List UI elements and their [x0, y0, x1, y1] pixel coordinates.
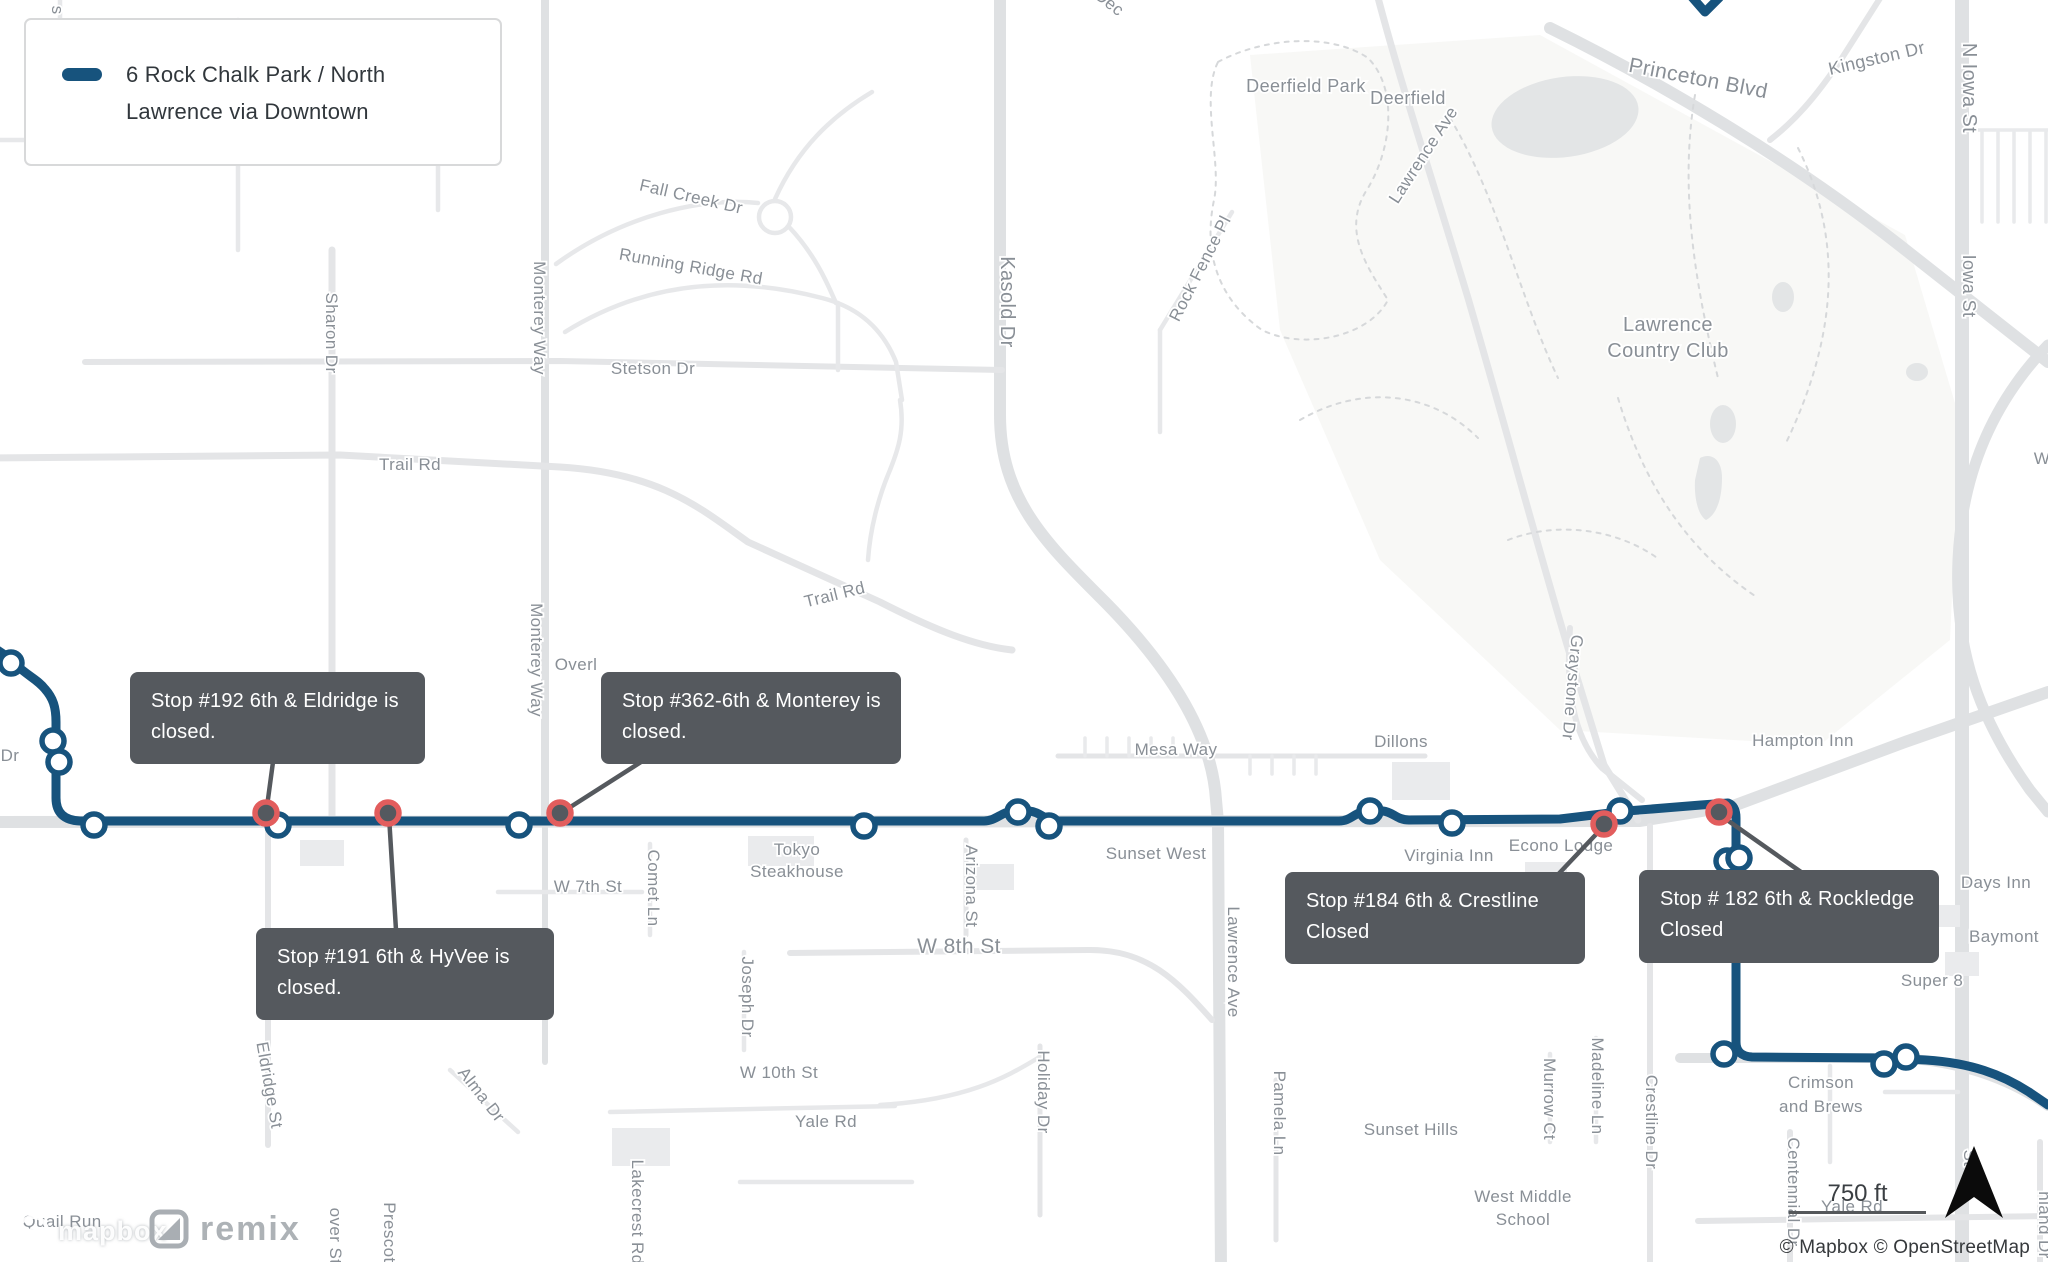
street-label: Baymont	[1969, 927, 2039, 946]
street-label: Madeline Ln	[1588, 1037, 1607, 1134]
route-legend-label: 6 Rock Chalk Park / North Lawrence via D…	[126, 56, 385, 130]
bus-stop-marker[interactable]	[1728, 847, 1750, 869]
street-label: Monterey Way	[527, 603, 546, 717]
street-label: Hampton Inn	[1752, 731, 1854, 750]
map-page: s FDecSharon DrMonterey WayMonterey WayF…	[0, 0, 2048, 1262]
tooltip-stop-362: Stop #362-6th & Monterey is closed.	[601, 672, 901, 764]
street-label: Murrow Ct	[1540, 1058, 1559, 1140]
bus-stop-marker[interactable]	[1713, 1043, 1735, 1065]
scale-text: 750 ft	[1789, 1180, 1926, 1208]
tooltip-leader-line	[561, 762, 641, 813]
tooltip-stop-184-line1: Stop #184 6th & Crestline	[1306, 886, 1564, 917]
street-label: Dr	[1, 746, 20, 765]
tooltip-stop-192-line1: Stop #192 6th & Eldridge is	[151, 686, 404, 717]
street-label: Prescott	[380, 1202, 399, 1262]
street-label: Overl	[555, 655, 598, 674]
street-label: Dillons	[1374, 732, 1428, 751]
bus-stop-marker[interactable]	[853, 815, 875, 837]
tooltip-stop-184-line2: Closed	[1306, 917, 1564, 948]
bus-stop-marker[interactable]	[48, 751, 70, 773]
street-label: Lawrence Ave	[1224, 906, 1243, 1017]
north-arrow-icon	[1945, 1146, 2003, 1218]
closed-stop-marker[interactable]	[377, 802, 399, 824]
bus-stop-marker[interactable]	[1895, 1046, 1917, 1068]
street-label: Arizona St	[962, 845, 981, 927]
mapbox-logo-icon	[16, 1214, 50, 1248]
street-label: Alma Dr	[454, 1063, 508, 1125]
route-legend-line2: Lawrence via Downtown	[126, 99, 369, 124]
street-label: Eldridge St	[252, 1040, 286, 1130]
street-label: School	[1496, 1210, 1550, 1229]
route-legend: 6 Rock Chalk Park / North Lawrence via D…	[24, 18, 502, 166]
closed-stop-marker[interactable]	[1593, 813, 1615, 835]
bus-stop-marker[interactable]	[1359, 800, 1381, 822]
street-label: and Brews	[1779, 1097, 1863, 1116]
street-label: Sunset Hills	[1364, 1120, 1459, 1139]
street-label: Stetson Dr	[611, 359, 695, 378]
bus-stop-marker[interactable]	[1441, 812, 1463, 834]
tooltip-stop-191-line2: closed.	[277, 973, 533, 1004]
street-label: W 7th St	[554, 877, 622, 896]
street-label: over St	[326, 1208, 345, 1262]
street-label: Crimson	[1788, 1073, 1854, 1092]
map-canvas[interactable]: s FDecSharon DrMonterey WayMonterey WayF…	[0, 0, 2048, 1262]
tooltip-stop-182-line1: Stop # 182 6th & Rockledge	[1660, 884, 1918, 915]
street-label: Running Ridge Rd	[618, 245, 764, 289]
street-label: Steakhouse	[750, 862, 844, 881]
bus-stop-marker[interactable]	[1007, 801, 1029, 823]
remix-logo-icon	[148, 1208, 190, 1250]
street-label: Rock Fence Pl	[1165, 213, 1234, 325]
tooltip-stop-191: Stop #191 6th & HyVee is closed.	[256, 928, 554, 1020]
bus-stop-marker[interactable]	[83, 814, 105, 836]
street-label: Lawrence	[1623, 314, 1713, 336]
bus-route-line-stub[interactable]	[1691, 0, 1719, 12]
closed-stop-marker[interactable]	[549, 802, 571, 824]
street-label: Trail Rd	[379, 455, 441, 474]
street-label: Kasold Dr	[996, 256, 1018, 347]
scale-bar	[1789, 1211, 1926, 1214]
tooltip-stop-184: Stop #184 6th & Crestline Closed	[1285, 872, 1585, 964]
tooltip-stop-192: Stop #192 6th & Eldridge is closed.	[130, 672, 425, 764]
remix-logo-word: remix	[200, 1210, 301, 1249]
bus-stop-marker[interactable]	[508, 814, 530, 836]
closed-stop-marker[interactable]	[255, 802, 277, 824]
street-label: Country Club	[1607, 340, 1729, 362]
street-label: Sunset West	[1106, 844, 1206, 863]
mapbox-logo[interactable]: mapbox	[16, 1214, 168, 1248]
street-label: Econo Lodge	[1509, 836, 1614, 855]
street-label: Mesa Way	[1135, 740, 1218, 759]
bus-stop-marker[interactable]	[0, 652, 22, 674]
tooltip-leader-line	[389, 816, 396, 930]
street-label: Fall Creek Dr	[638, 176, 745, 218]
route-legend-line1: 6 Rock Chalk Park / North	[126, 62, 385, 87]
map-attribution[interactable]: © Mapbox © OpenStreetMap	[1780, 1237, 2030, 1259]
tooltip-stop-192-line2: closed.	[151, 717, 404, 748]
street-label: Virginia Inn	[1404, 846, 1494, 865]
street-label: N Iowa St	[1958, 43, 1980, 133]
street-label: Holiday Dr	[1034, 1050, 1053, 1133]
street-label: W 8th St	[917, 935, 1001, 958]
street-label: Tokyo	[774, 840, 820, 859]
tooltip-stop-182: Stop # 182 6th & Rockledge Closed	[1639, 870, 1939, 963]
street-label: Crestline Dr	[1642, 1075, 1661, 1170]
tooltip-stop-362-line1: Stop #362-6th & Monterey is	[622, 686, 880, 717]
street-label: Deerfield Park	[1246, 76, 1366, 96]
bus-stop-marker[interactable]	[1038, 815, 1060, 837]
tooltip-stop-191-line1: Stop #191 6th & HyVee is	[277, 942, 533, 973]
street-label: West Middle	[1474, 1187, 1572, 1206]
street-label: W	[2034, 449, 2048, 468]
street-label: Deerfield	[1370, 88, 1446, 108]
street-label: Iowa St	[1959, 255, 1979, 318]
street-label: Sharon Dr	[322, 292, 341, 373]
street-label: Kingston Dr	[1826, 37, 1926, 79]
street-label: Lakecrest Rd	[628, 1160, 647, 1262]
street-label: Dec	[1091, 0, 1128, 20]
street-label: Monterey Way	[530, 261, 549, 375]
street-label: Joseph Dr	[738, 956, 757, 1037]
tooltip-stop-362-line2: closed.	[622, 717, 880, 748]
route-color-swatch	[62, 68, 102, 81]
tooltip-stop-182-line2: Closed	[1660, 915, 1918, 946]
street-label: Pamela Ln	[1270, 1071, 1289, 1156]
street-label: Comet Ln	[644, 850, 663, 927]
remix-logo[interactable]: remix	[148, 1208, 301, 1250]
street-label: W 10th St	[740, 1063, 818, 1082]
bus-stop-marker[interactable]	[1873, 1053, 1895, 1075]
closed-stop-marker[interactable]	[1708, 801, 1730, 823]
street-label: Super 8	[1901, 971, 1963, 990]
street-label: hland Dr	[2035, 1191, 2048, 1258]
street-label: Days Inn	[1961, 873, 2031, 892]
street-label: Yale Rd	[795, 1112, 857, 1131]
